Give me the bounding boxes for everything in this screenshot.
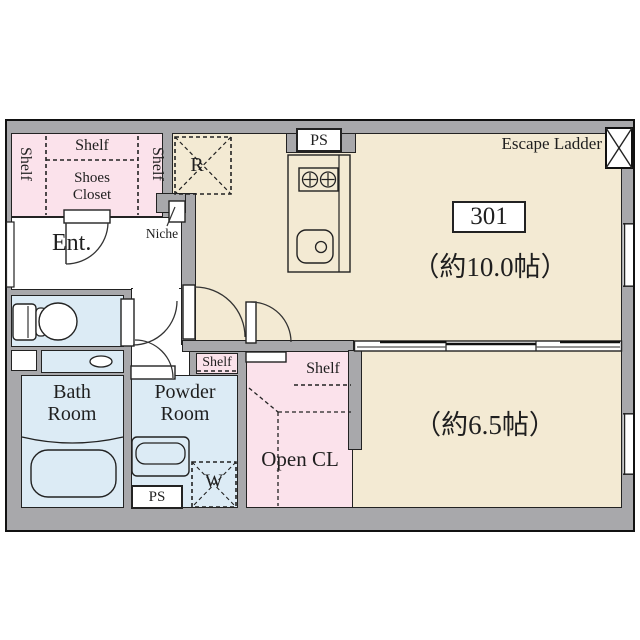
western-room-size-label: （約6.5帖） [390, 410, 580, 440]
ldk-floor [172, 133, 622, 344]
hall-seam [133, 286, 179, 294]
shelf-closet-top-label: Shelf [45, 137, 139, 155]
shelf-closet-left-label: Shelf [16, 147, 34, 181]
main-room-size-label: （約10.0帖） [385, 252, 595, 282]
floor-plan: Escape Ladder 301 （約10.0帖） （約6.5帖） PS PS… [0, 0, 640, 640]
shelf-closet-right-label: Shelf [148, 147, 166, 181]
open-closet-shelf-label: Shelf [294, 360, 352, 378]
washer-space-label: W [192, 471, 236, 492]
bath-room-label: Bath Room [37, 381, 107, 426]
refrigerator-space-label: R [177, 154, 217, 176]
pipe-space-top-label: PS [296, 128, 342, 152]
powder-shelf-label: Shelf [196, 355, 238, 371]
escape-ladder-label: Escape Ladder [430, 134, 602, 153]
wall-ldk-south [182, 340, 354, 352]
open-closet-label: Open CL [248, 448, 352, 472]
toilet-counter [41, 350, 124, 373]
shoes-closet-label: Shoes Closet [57, 170, 127, 204]
wall-niche [156, 193, 186, 213]
niche-label: Niche [138, 226, 186, 241]
unit-number-badge: 301 [452, 201, 526, 233]
wall-hall-ldk [181, 193, 196, 345]
powder-room-label: Powder Room [146, 381, 224, 426]
toilet-room [11, 295, 124, 347]
entrance-label: Ent. [52, 230, 132, 257]
pipe-space-bottom-label: PS [131, 485, 183, 509]
toilet-ps-box [11, 350, 37, 371]
